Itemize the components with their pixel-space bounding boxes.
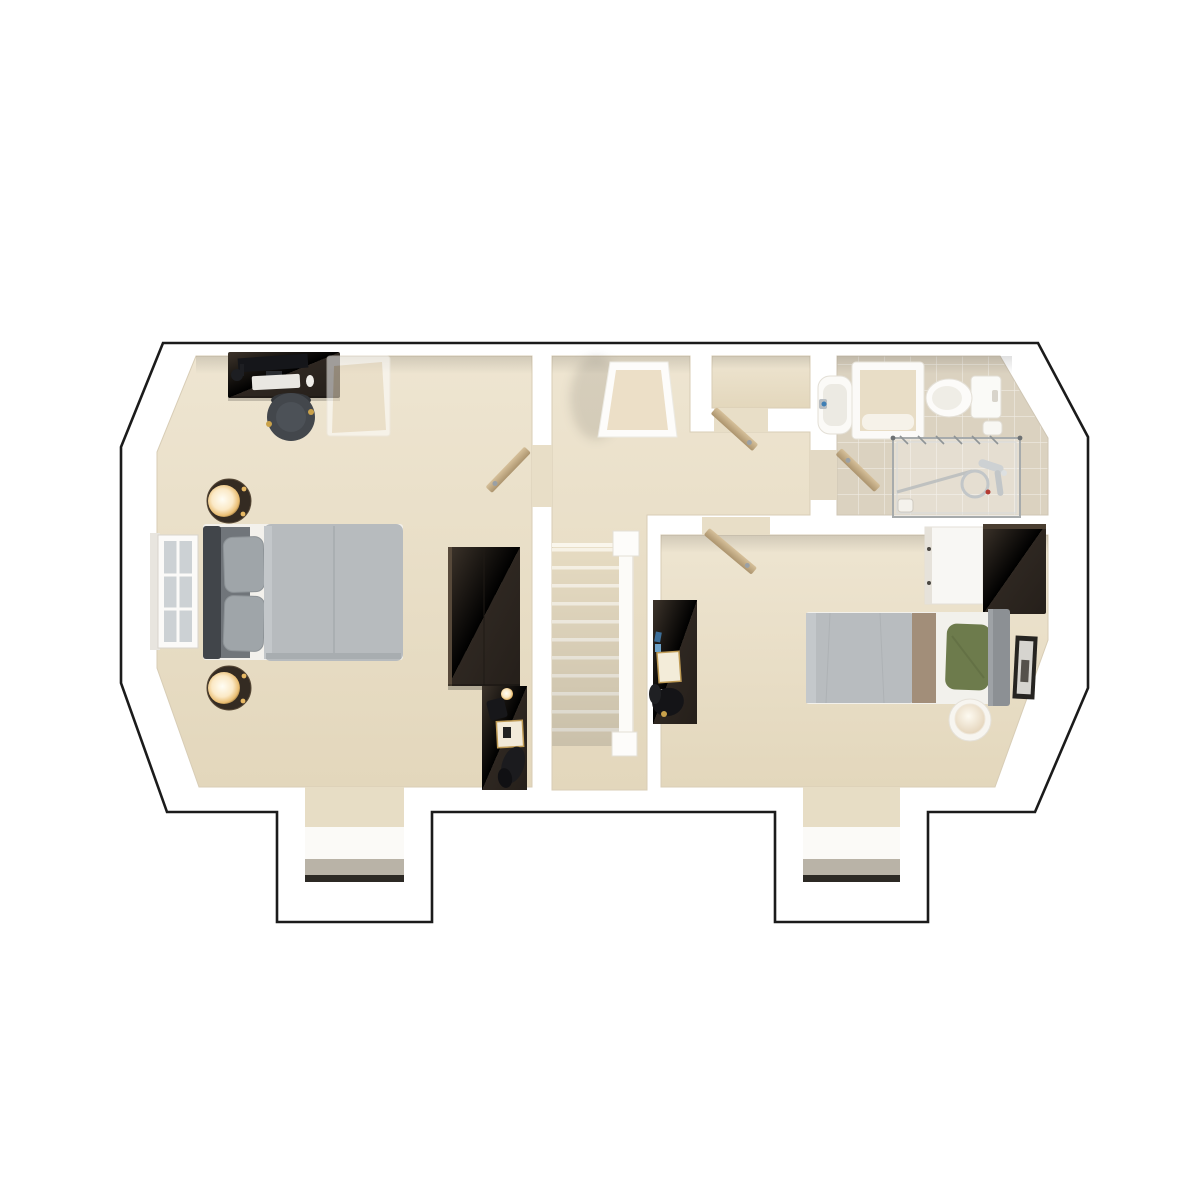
wash-basin: [818, 376, 852, 434]
dresser-decor-bedroom1: [482, 686, 529, 790]
window-bedroom1: [150, 533, 198, 650]
chest-front-face: [925, 527, 932, 604]
doorway-bedroom-1: [532, 445, 552, 507]
shower-corner-1: [891, 436, 896, 441]
wardrobe-bedroom1: [448, 547, 520, 690]
double-bed: [203, 524, 403, 661]
desk2-blue-book-2: [655, 644, 661, 652]
shower-corner-2: [1018, 436, 1023, 441]
brass-dot-3: [242, 674, 247, 679]
headboard: [203, 526, 221, 659]
bedside-lamp-bottom: [208, 672, 240, 704]
shower-head: [1001, 470, 1007, 476]
picture-frame-art: [1020, 660, 1029, 682]
ball-lamp: [955, 704, 985, 734]
floorplan-canvas: [0, 0, 1200, 1200]
balustrade-rail: [619, 534, 633, 754]
bedside-table-top: [207, 479, 251, 523]
wardrobe2-top: [983, 524, 1046, 614]
ghost-armchair: [327, 356, 390, 436]
dresser-lamp: [501, 688, 513, 700]
newel-post-bottom: [612, 732, 637, 756]
dormer-left-carpet: [305, 787, 404, 829]
blanket-band: [912, 613, 936, 703]
wardrobe2-edge: [983, 524, 1046, 529]
ghost-armchair-seat: [332, 362, 386, 433]
duvet-foot-shadow: [266, 653, 401, 659]
wardrobe-bedroom2: [983, 524, 1046, 614]
chair-cushion: [276, 402, 306, 432]
pillow-bottom: [223, 595, 265, 651]
toilet-flush: [992, 390, 998, 402]
storage-cupboard-landing: [598, 362, 677, 437]
dormer-window-bay-left: [305, 787, 404, 882]
cupboard-top-face: [607, 370, 668, 430]
shower-drain: [898, 499, 913, 512]
side-table-bedroom2: [949, 699, 991, 741]
duvet-highlight: [264, 526, 272, 659]
chair-brass-accent-left: [266, 421, 272, 427]
dormer-left-sill: [305, 859, 404, 876]
keyboard: [252, 374, 301, 390]
toilet-seat: [932, 386, 962, 410]
floorplan-render: [0, 0, 1200, 1200]
brass-dot-4: [241, 699, 246, 704]
dormer-right-frame: [803, 827, 900, 861]
mouse: [306, 375, 314, 387]
single-headboard-edge: [988, 609, 993, 706]
mixer-red-dot: [986, 490, 991, 495]
bedside-lamp-top: [208, 485, 240, 517]
brass-dot-1: [242, 487, 247, 492]
dormer-left-window-gap: [305, 875, 404, 882]
chest-handle-2: [927, 581, 931, 585]
paneled-bath-unit: [852, 362, 924, 439]
pillow-top: [223, 536, 265, 592]
bath-unit-ridge: [862, 414, 914, 430]
staircase: [552, 543, 619, 746]
stair-top-nosing: [552, 543, 619, 547]
chest-top: [925, 527, 983, 604]
toilet-roll-holder: [983, 421, 1002, 435]
brass-dot-2: [241, 512, 246, 517]
shadow-top-closet: [712, 356, 810, 369]
dormer-window-bay-right: [803, 787, 900, 882]
desk2-gold-frame: [657, 651, 681, 682]
single-duvet: [806, 613, 914, 703]
desk2-chair-arm: [649, 684, 661, 704]
shower-enclosure: [891, 436, 1023, 517]
dormer-right-sill: [803, 859, 900, 876]
tray-item: [503, 727, 511, 738]
desk2-brass-dot: [661, 711, 667, 717]
wardrobe-edge-highlight: [448, 547, 452, 686]
chest-of-drawers-white: [925, 527, 983, 604]
newel-post-top: [613, 531, 639, 556]
dormer-left-frame: [305, 827, 404, 861]
dormer-right-window-gap: [803, 875, 900, 882]
doorway-bathroom: [810, 450, 837, 500]
desk-bedroom2: [649, 600, 697, 724]
single-duvet-highlight: [806, 613, 816, 703]
picture-frame-wall: [1012, 635, 1037, 699]
stair-shading: [552, 548, 619, 746]
desk-lamp-arm: [240, 364, 244, 376]
bedside-table-bottom: [207, 666, 251, 710]
dormer-right-carpet: [803, 787, 900, 829]
single-bed: [806, 609, 1010, 706]
chair-brass-accent-right: [308, 409, 314, 415]
chest-handle-1: [927, 547, 931, 551]
tap-blue-dot: [822, 402, 827, 407]
